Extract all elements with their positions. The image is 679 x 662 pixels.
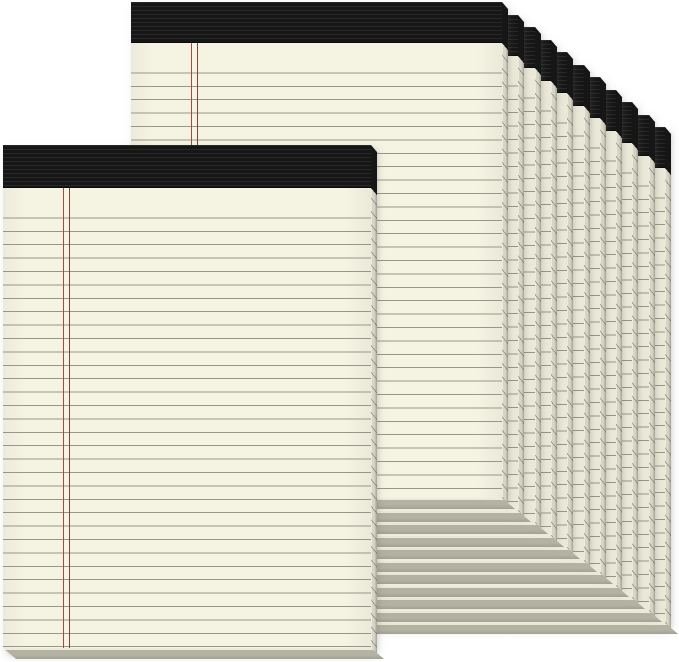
front-pad — [3, 145, 371, 648]
pad-right-side-edge — [632, 102, 638, 605]
pad-right-side-edge — [551, 40, 557, 543]
pad-binding — [3, 145, 371, 188]
pad-right-side-edge — [567, 52, 573, 555]
pad-right-side-edge — [371, 145, 377, 655]
pad-right-side-edge — [665, 127, 671, 630]
pad-binding — [131, 2, 502, 43]
pad-rule-lines — [3, 205, 371, 648]
pad-right-side-edge — [518, 15, 524, 518]
pad-right-side-edge — [600, 77, 606, 580]
pad-red-margin-line — [63, 188, 70, 648]
pad-right-side-edge — [649, 115, 655, 618]
pad-right-side-edge — [502, 2, 508, 505]
notepad-stack-photo — [0, 0, 679, 662]
pad-right-side-edge — [616, 90, 622, 593]
pad-right-side-edge — [584, 65, 590, 568]
pad-right-side-edge — [535, 27, 541, 530]
pad-bottom-edge — [3, 648, 384, 659]
